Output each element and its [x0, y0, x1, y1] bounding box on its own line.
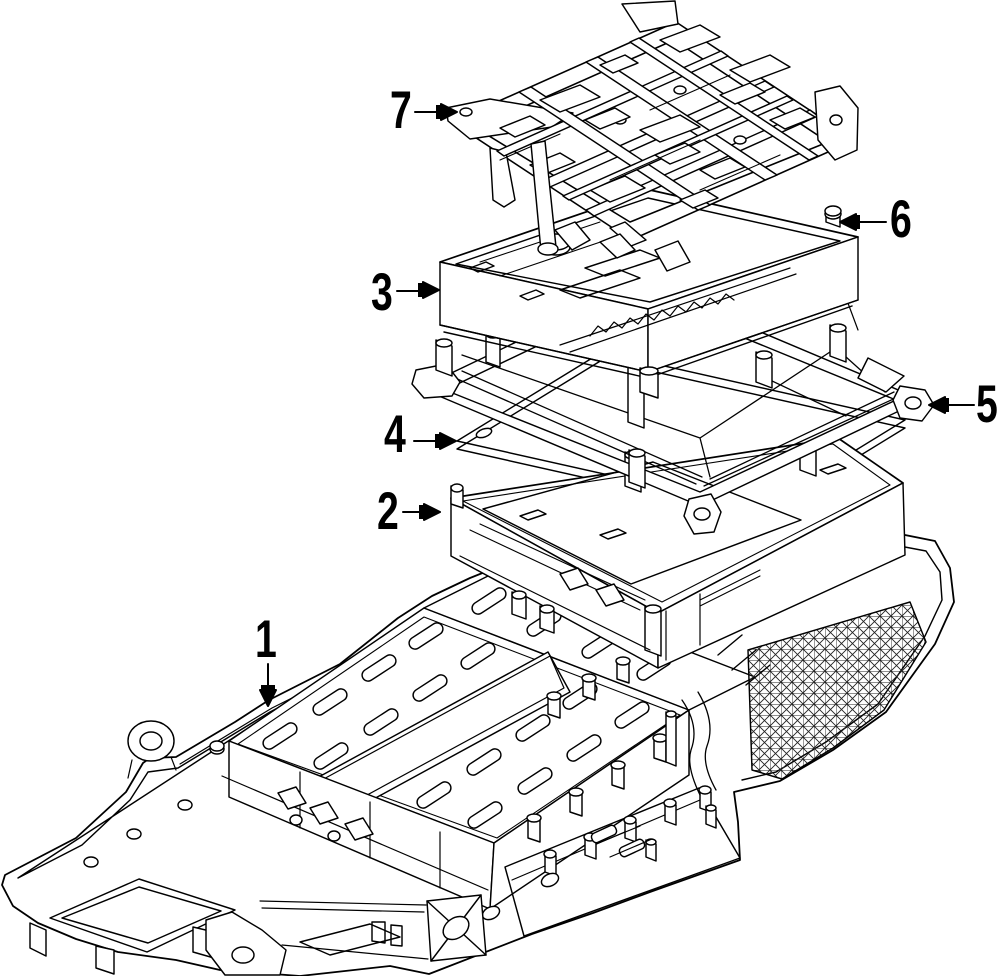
svg-text:1: 1 [255, 609, 277, 668]
svg-text:6: 6 [890, 189, 912, 248]
svg-text:7: 7 [390, 80, 412, 139]
svg-text:4: 4 [384, 404, 406, 463]
svg-text:3: 3 [371, 262, 393, 321]
svg-text:2: 2 [377, 481, 399, 540]
svg-text:5: 5 [976, 374, 998, 433]
